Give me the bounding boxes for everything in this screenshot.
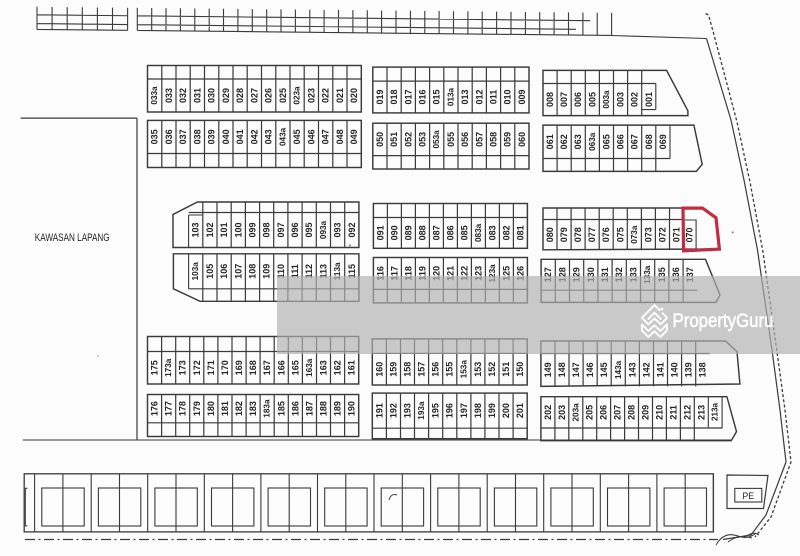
- svg-text:083: 083: [487, 225, 497, 240]
- svg-text:149: 149: [543, 362, 553, 377]
- svg-text:027: 027: [249, 88, 259, 103]
- svg-text:030: 030: [207, 88, 217, 103]
- svg-text:156: 156: [431, 362, 441, 377]
- svg-text:078: 078: [573, 227, 583, 242]
- svg-text:011: 011: [489, 90, 499, 105]
- svg-text:103a: 103a: [191, 262, 200, 281]
- svg-text:037: 037: [178, 129, 188, 144]
- svg-text:195: 195: [431, 403, 441, 418]
- svg-text:151: 151: [501, 362, 511, 377]
- svg-text:183: 183: [248, 401, 258, 416]
- svg-text:076: 076: [601, 227, 611, 242]
- svg-text:082: 082: [501, 225, 511, 240]
- svg-text:105: 105: [205, 264, 215, 279]
- svg-text:096: 096: [290, 222, 300, 237]
- svg-text:059: 059: [503, 132, 513, 147]
- svg-text:PropertyGuru: PropertyGuru: [673, 311, 774, 332]
- svg-text:213: 213: [696, 405, 706, 420]
- svg-text:140: 140: [670, 362, 680, 377]
- svg-text:202: 202: [543, 405, 553, 420]
- svg-text:033: 033: [164, 88, 174, 103]
- svg-text:163: 163: [319, 360, 329, 375]
- svg-text:017: 017: [403, 89, 413, 104]
- svg-text:183a: 183a: [263, 399, 272, 418]
- svg-text:173: 173: [178, 360, 188, 375]
- svg-text:045: 045: [292, 129, 302, 144]
- svg-text:065: 065: [602, 134, 612, 149]
- svg-text:071: 071: [672, 227, 682, 242]
- svg-text:085: 085: [459, 225, 469, 240]
- svg-text:047: 047: [321, 129, 331, 144]
- svg-text:060: 060: [517, 132, 527, 147]
- svg-text:185: 185: [276, 401, 286, 416]
- svg-text:147: 147: [571, 362, 581, 377]
- svg-text:002: 002: [630, 92, 640, 107]
- svg-text:138: 138: [698, 362, 708, 377]
- svg-text:003: 003: [616, 92, 626, 107]
- svg-text:143a: 143a: [614, 360, 623, 379]
- svg-text:150: 150: [515, 362, 525, 377]
- svg-text:103: 103: [191, 222, 201, 237]
- svg-text:203a: 203a: [571, 403, 580, 422]
- svg-text:042: 042: [249, 129, 259, 144]
- svg-text:201: 201: [515, 403, 525, 418]
- svg-text:035: 035: [150, 129, 160, 144]
- svg-text:206: 206: [599, 405, 609, 420]
- svg-text:001: 001: [644, 92, 654, 107]
- svg-text:100: 100: [233, 222, 243, 237]
- svg-text:153a: 153a: [459, 360, 468, 379]
- svg-text:170: 170: [220, 360, 230, 375]
- svg-text:058: 058: [489, 132, 499, 147]
- svg-text:063a: 063a: [588, 132, 597, 151]
- svg-text:089: 089: [403, 225, 413, 240]
- svg-text:158: 158: [403, 362, 413, 377]
- svg-text:097: 097: [276, 222, 286, 237]
- svg-text:099: 099: [248, 222, 258, 237]
- svg-text:165: 165: [290, 360, 300, 375]
- svg-text:155: 155: [445, 362, 455, 377]
- svg-text:176: 176: [150, 401, 160, 416]
- svg-text:053: 053: [418, 132, 428, 147]
- svg-text:152: 152: [487, 362, 497, 377]
- svg-text:146: 146: [585, 362, 595, 377]
- svg-text:175: 175: [150, 360, 160, 375]
- svg-text:062: 062: [559, 134, 569, 149]
- svg-text:087: 087: [431, 225, 441, 240]
- svg-text:086: 086: [445, 225, 455, 240]
- svg-text:046: 046: [306, 129, 316, 144]
- svg-text:072: 072: [657, 227, 667, 242]
- svg-text:023: 023: [306, 88, 316, 103]
- svg-text:069: 069: [658, 134, 668, 149]
- svg-text:008: 008: [545, 92, 555, 107]
- svg-text:182: 182: [234, 401, 244, 416]
- svg-text:093: 093: [333, 222, 343, 237]
- svg-text:210: 210: [655, 405, 665, 420]
- svg-text:168: 168: [248, 360, 258, 375]
- svg-text:212: 212: [682, 405, 692, 420]
- svg-text:106: 106: [219, 264, 229, 279]
- svg-text:166: 166: [276, 360, 286, 375]
- svg-text:026: 026: [264, 88, 274, 103]
- svg-text:161: 161: [347, 360, 357, 375]
- svg-text:093a: 093a: [319, 220, 328, 239]
- svg-text:186: 186: [290, 401, 300, 416]
- svg-text:052: 052: [403, 132, 413, 147]
- svg-text:153: 153: [473, 362, 483, 377]
- svg-text:005: 005: [587, 92, 597, 107]
- svg-text:031: 031: [192, 88, 202, 103]
- svg-text:092: 092: [347, 222, 357, 237]
- svg-text:077: 077: [587, 227, 597, 242]
- svg-text:102: 102: [205, 222, 215, 237]
- svg-text:171: 171: [206, 360, 216, 375]
- svg-text:015: 015: [432, 89, 442, 104]
- svg-text:050: 050: [375, 132, 385, 147]
- svg-text:207: 207: [613, 405, 623, 420]
- svg-text:213a: 213a: [711, 403, 720, 422]
- svg-text:025: 025: [278, 88, 288, 103]
- svg-text:007: 007: [559, 92, 569, 107]
- svg-text:088: 088: [417, 225, 427, 240]
- svg-text:063: 063: [573, 134, 583, 149]
- svg-text:203: 203: [557, 405, 567, 420]
- svg-text:049: 049: [349, 129, 359, 144]
- svg-text:036: 036: [164, 129, 174, 144]
- svg-text:101: 101: [219, 222, 229, 237]
- svg-text:043: 043: [264, 129, 274, 144]
- svg-text:032: 032: [178, 88, 188, 103]
- svg-text:012: 012: [474, 89, 484, 104]
- svg-text:162: 162: [333, 360, 343, 375]
- svg-text:039: 039: [207, 129, 217, 144]
- svg-text:159: 159: [388, 362, 398, 377]
- svg-text:081: 081: [515, 225, 525, 240]
- svg-text:091: 091: [375, 225, 385, 240]
- svg-text:016: 016: [418, 89, 428, 104]
- svg-text:013: 013: [460, 89, 470, 104]
- svg-text:040: 040: [221, 129, 231, 144]
- svg-text:177: 177: [164, 401, 174, 416]
- svg-text:208: 208: [627, 405, 637, 420]
- svg-text:160: 160: [374, 362, 384, 377]
- svg-text:056: 056: [460, 132, 470, 147]
- svg-text:043a: 043a: [278, 127, 287, 146]
- svg-text:193a: 193a: [417, 401, 426, 420]
- svg-text:038: 038: [192, 129, 202, 144]
- svg-text:179: 179: [192, 401, 202, 416]
- svg-text:PE: PE: [742, 491, 754, 501]
- svg-text:073a: 073a: [630, 225, 639, 244]
- svg-text:209: 209: [641, 405, 651, 420]
- svg-text:055: 055: [446, 132, 456, 147]
- svg-text:107: 107: [233, 264, 243, 279]
- svg-text:200: 200: [501, 403, 511, 418]
- svg-text:073: 073: [643, 227, 653, 242]
- svg-text:079: 079: [559, 227, 569, 242]
- svg-text:141: 141: [656, 362, 666, 377]
- svg-text:022: 022: [321, 88, 331, 103]
- svg-text:108: 108: [248, 264, 258, 279]
- svg-text:098: 098: [262, 222, 272, 237]
- svg-text:148: 148: [557, 362, 567, 377]
- svg-text:041: 041: [235, 129, 245, 144]
- svg-text:095: 095: [304, 222, 314, 237]
- svg-text:009: 009: [517, 89, 527, 104]
- svg-text:139: 139: [684, 362, 694, 377]
- svg-text:172: 172: [192, 360, 202, 375]
- svg-text:029: 029: [221, 88, 231, 103]
- svg-text:083a: 083a: [474, 223, 483, 242]
- svg-text:057: 057: [474, 132, 484, 147]
- svg-text:205: 205: [585, 405, 595, 420]
- svg-text:048: 048: [335, 129, 345, 144]
- svg-text:178: 178: [178, 401, 188, 416]
- svg-text:061: 061: [545, 134, 555, 149]
- svg-text:189: 189: [333, 401, 343, 416]
- svg-text:181: 181: [220, 401, 230, 416]
- svg-text:167: 167: [262, 360, 272, 375]
- svg-text:157: 157: [417, 362, 427, 377]
- svg-text:019: 019: [375, 89, 385, 104]
- svg-text:142: 142: [641, 362, 651, 377]
- svg-text:196: 196: [445, 403, 455, 418]
- svg-text:023a: 023a: [293, 86, 302, 105]
- svg-text:075: 075: [615, 227, 625, 242]
- svg-text:068: 068: [644, 134, 654, 149]
- svg-text:192: 192: [388, 403, 398, 418]
- svg-text:033a: 033a: [150, 86, 159, 105]
- svg-text:080: 080: [545, 227, 555, 242]
- svg-text:013a: 013a: [446, 87, 455, 106]
- svg-text:143: 143: [627, 362, 637, 377]
- svg-text:090: 090: [389, 225, 399, 240]
- svg-text:169: 169: [234, 360, 244, 375]
- svg-text:066: 066: [616, 134, 626, 149]
- svg-text:006: 006: [573, 92, 583, 107]
- svg-text:173a: 173a: [164, 358, 173, 377]
- svg-text:191: 191: [374, 403, 384, 418]
- svg-text:KAWASAN LAPANG: KAWASAN LAPANG: [35, 232, 110, 244]
- svg-text:187: 187: [304, 401, 314, 416]
- svg-text:018: 018: [389, 89, 399, 104]
- svg-text:190: 190: [347, 401, 357, 416]
- svg-text:020: 020: [349, 88, 359, 103]
- svg-text:051: 051: [389, 132, 399, 147]
- svg-text:211: 211: [668, 405, 678, 420]
- svg-text:109: 109: [262, 264, 272, 279]
- svg-text:188: 188: [319, 401, 329, 416]
- svg-text:003a: 003a: [602, 90, 611, 109]
- svg-text:163a: 163a: [305, 358, 314, 377]
- svg-text:199: 199: [487, 403, 497, 418]
- svg-text:198: 198: [473, 403, 483, 418]
- svg-text:197: 197: [459, 403, 469, 418]
- svg-text:053a: 053a: [432, 130, 441, 149]
- svg-text:145: 145: [599, 362, 609, 377]
- svg-text:028: 028: [235, 88, 245, 103]
- svg-text:067: 067: [630, 134, 640, 149]
- svg-text:010: 010: [503, 89, 513, 104]
- svg-text:021: 021: [335, 88, 345, 103]
- svg-text:070: 070: [685, 228, 695, 243]
- svg-text:180: 180: [206, 401, 216, 416]
- svg-text:193: 193: [403, 403, 413, 418]
